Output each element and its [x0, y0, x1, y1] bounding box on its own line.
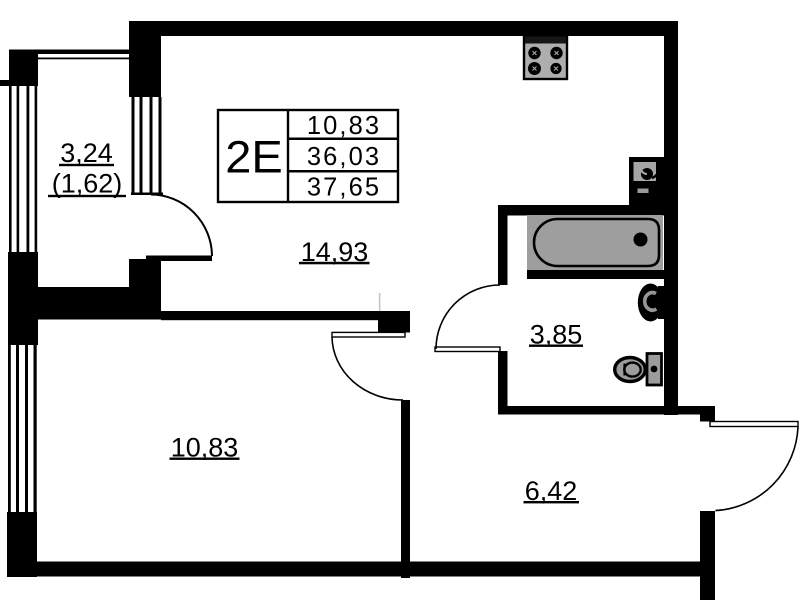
svg-text:37,65: 37,65 [307, 173, 381, 201]
svg-text:36,03: 36,03 [307, 143, 381, 171]
svg-text:10,83: 10,83 [307, 112, 381, 140]
svg-text:(1,62): (1,62) [52, 169, 123, 199]
svg-text:3,24: 3,24 [60, 138, 113, 168]
svg-text:2E: 2E [225, 132, 283, 183]
